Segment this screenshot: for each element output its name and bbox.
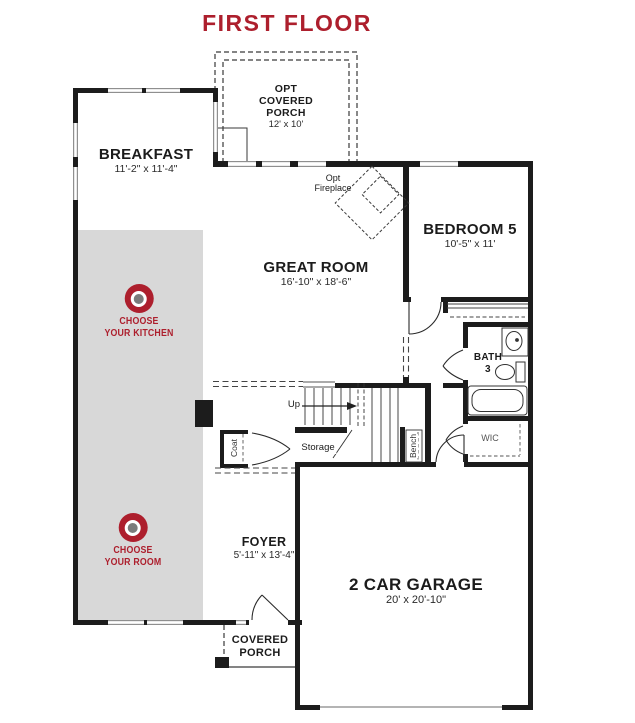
garage-label: 2 CAR GARAGE [349, 575, 483, 594]
great-room-label: GREAT ROOM [263, 260, 368, 277]
great-room-dims: 16'-10" x 18'-6" [281, 277, 351, 289]
porch-corner-pad [215, 128, 247, 163]
floor-plan: FIRST FLOOR OPT COVERED PORCH 12' x 10' … [0, 0, 635, 723]
bench-label: Bench [408, 434, 418, 458]
page-title: FIRST FLOOR [202, 10, 372, 37]
foyer-dims: 5'-11" x 13'-4" [234, 550, 295, 561]
choose-your-kitchen-label: CHOOSE YOUR KITCHEN [104, 316, 173, 340]
bedroom-5-dims: 10'-5" x 11' [445, 239, 496, 251]
doors [252, 302, 464, 620]
opt-fireplace-label: Opt Fireplace [314, 173, 351, 193]
choose-your-room-label: CHOOSE YOUR ROOM [105, 545, 162, 569]
breakfast-label: BREAKFAST [99, 147, 193, 164]
opt-covered-porch-dims: 12' x 10' [269, 120, 304, 131]
garage-dims: 20' x 20'-10" [386, 594, 446, 606]
wic-label: WIC [481, 433, 499, 443]
bathtub-icon [468, 386, 527, 415]
closet-shelf [447, 304, 528, 317]
coat-label: Coat [229, 439, 239, 457]
breakfast-dims: 11'-2" x 11'-4" [114, 164, 177, 176]
choose-your-room-hotspot[interactable]: CHOOSE YOUR ROOM [101, 513, 166, 569]
bedroom-5-label: BEDROOM 5 [423, 222, 517, 239]
opt-covered-porch-label: OPT COVERED PORCH [259, 84, 313, 119]
bullseye-icon [124, 284, 153, 313]
vanity-sink-icon [502, 328, 528, 356]
bath-3-label: BATH 3 [474, 352, 502, 375]
covered-porch-label: COVERED PORCH [232, 634, 289, 659]
bullseye-icon [119, 513, 148, 542]
choose-your-kitchen-hotspot[interactable]: CHOOSE YOUR KITCHEN [100, 284, 179, 340]
stair-rail [303, 382, 335, 387]
floor-plan-drawing [0, 0, 635, 723]
foyer-label: FOYER [242, 535, 287, 549]
storage-label: Storage [299, 443, 336, 454]
up-arrow-icon [302, 402, 357, 410]
up-label: Up [286, 400, 302, 411]
